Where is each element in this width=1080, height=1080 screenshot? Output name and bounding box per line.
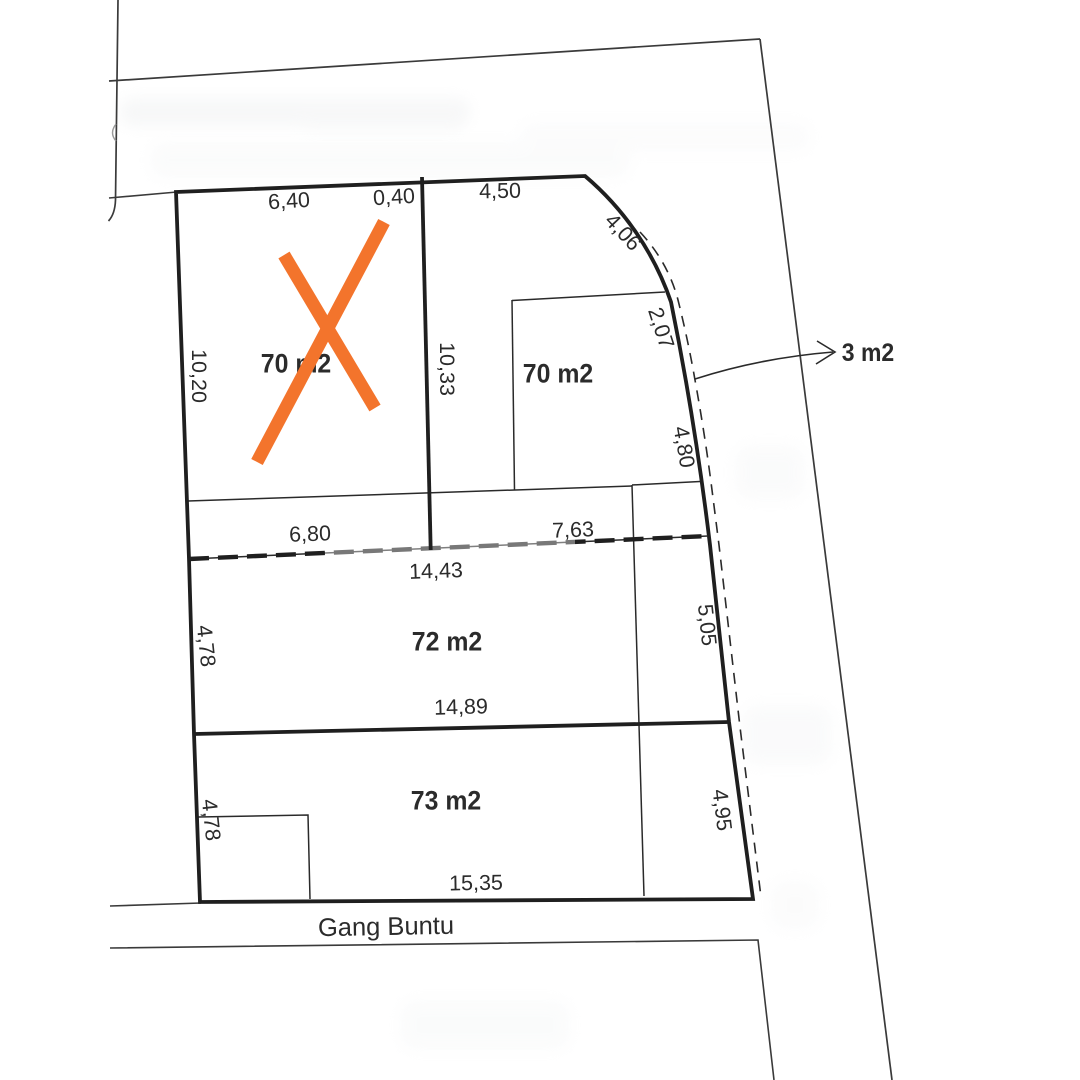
svg-text:6,40: 6,40 [267,188,310,215]
svg-text:6,80: 6,80 [289,521,332,546]
svg-text:15,35: 15,35 [449,871,503,896]
svg-text:72 m2: 72 m2 [412,627,482,656]
svg-text:0,40: 0,40 [372,184,415,211]
svg-text:3 m2: 3 m2 [842,339,894,367]
svg-text:4,78: 4,78 [192,624,220,668]
svg-text:70 m2: 70 m2 [523,359,593,388]
svg-text:5,05: 5,05 [693,603,721,647]
svg-text:7,63: 7,63 [552,517,595,542]
svg-text:4,78: 4,78 [197,798,225,842]
svg-text:4,50: 4,50 [479,179,521,204]
svg-text:73 m2: 73 m2 [411,786,481,815]
svg-text:10,33: 10,33 [435,342,459,396]
svg-text:Gang Buntu: Gang Buntu [318,912,455,942]
svg-text:4,95: 4,95 [708,788,737,833]
svg-text:14,43: 14,43 [409,558,464,584]
svg-text:10,20: 10,20 [187,349,211,403]
svg-text:14,89: 14,89 [434,694,488,719]
